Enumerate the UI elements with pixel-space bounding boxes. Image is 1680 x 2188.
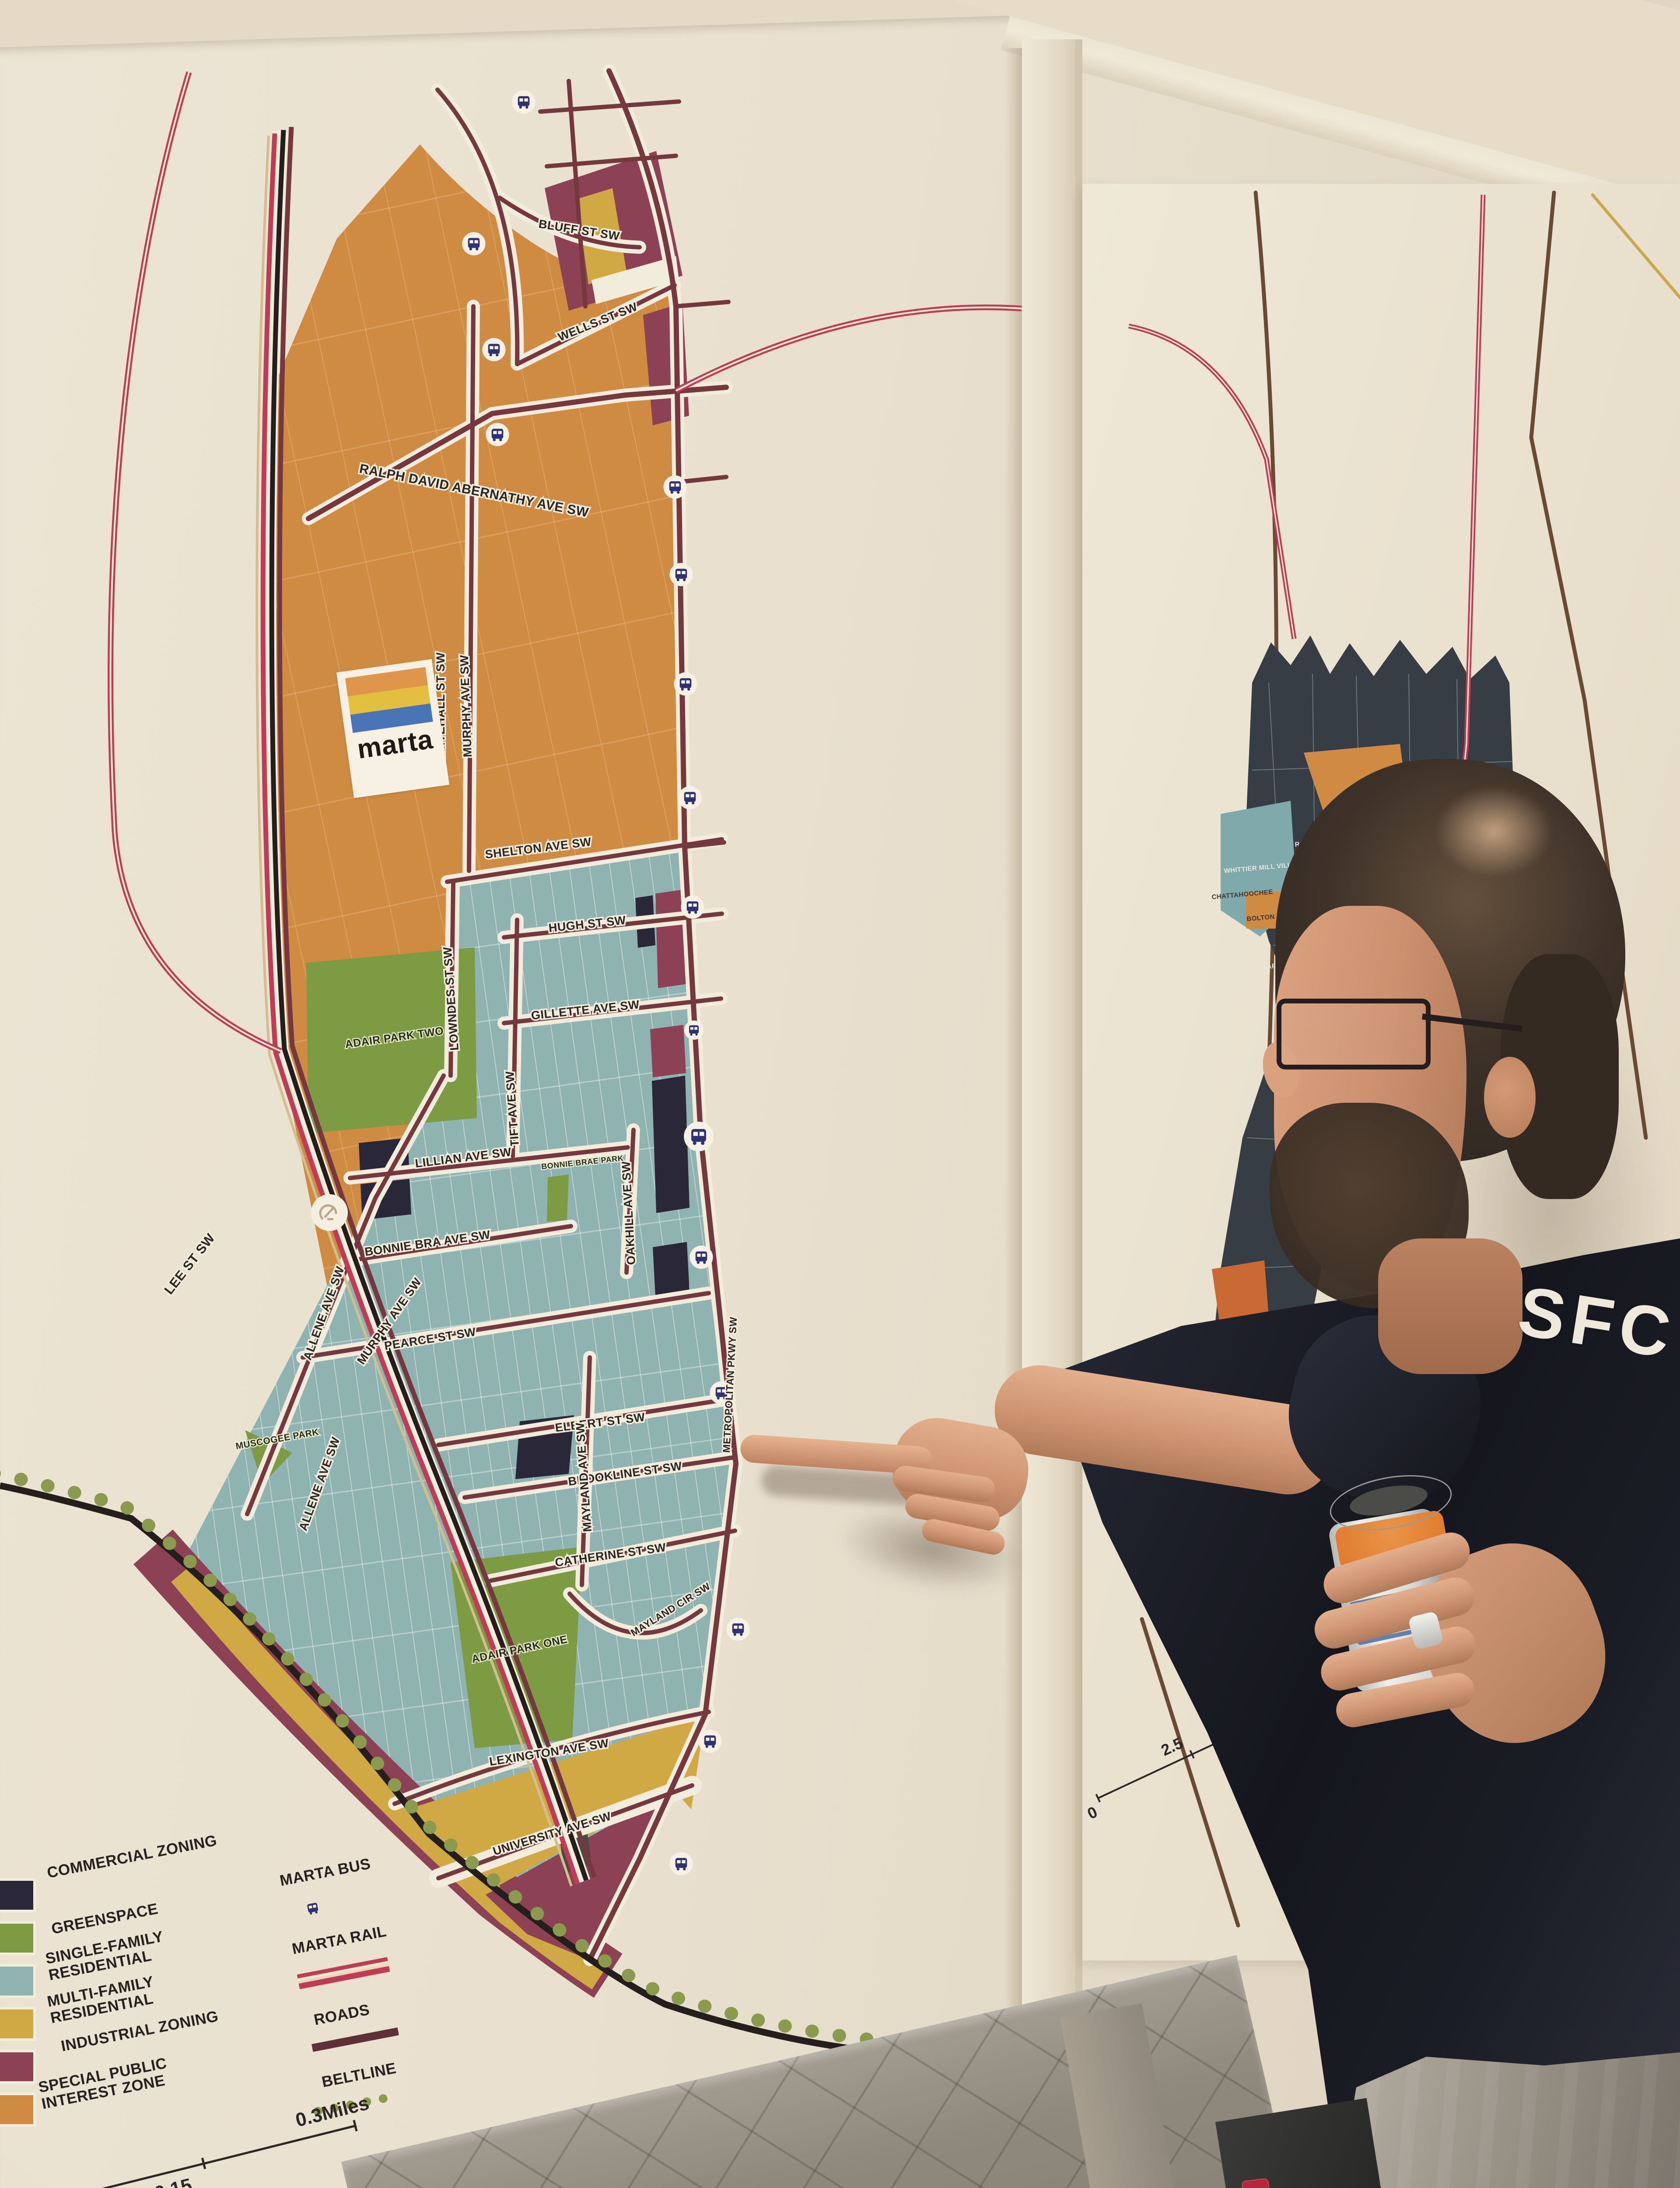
legend-label: MARTA RAIL [290,1920,405,1958]
legend-rail-swatch [297,1957,390,1989]
legend-swatch-commercial [0,1878,36,1912]
legend-swatch-greenspace [0,1921,36,1955]
legend-label: BELTLINE [320,2053,435,2091]
marta-logo: marta [336,659,449,798]
street-label: LEE ST SW [162,1231,218,1297]
legend-swatch-single-family [0,1964,36,1998]
legend-label: MARTA BUS [278,1851,393,1890]
marta-bus-icon [300,1896,326,1922]
legend-label: ROADS [312,1991,427,2029]
glasses [1277,999,1431,1069]
legend-swatch-multi-family [0,2007,36,2041]
legend-swatch-industrial [0,2050,36,2084]
man-ear [1484,1057,1536,1138]
man-neck [1378,1238,1522,1374]
legend-roads-swatch [311,2027,399,2052]
marta-logo-stripes [345,667,433,733]
legend-swatch-spi [0,2093,36,2127]
bald-spot-highlight [1435,785,1553,877]
map-emblem-icon [311,1194,348,1231]
